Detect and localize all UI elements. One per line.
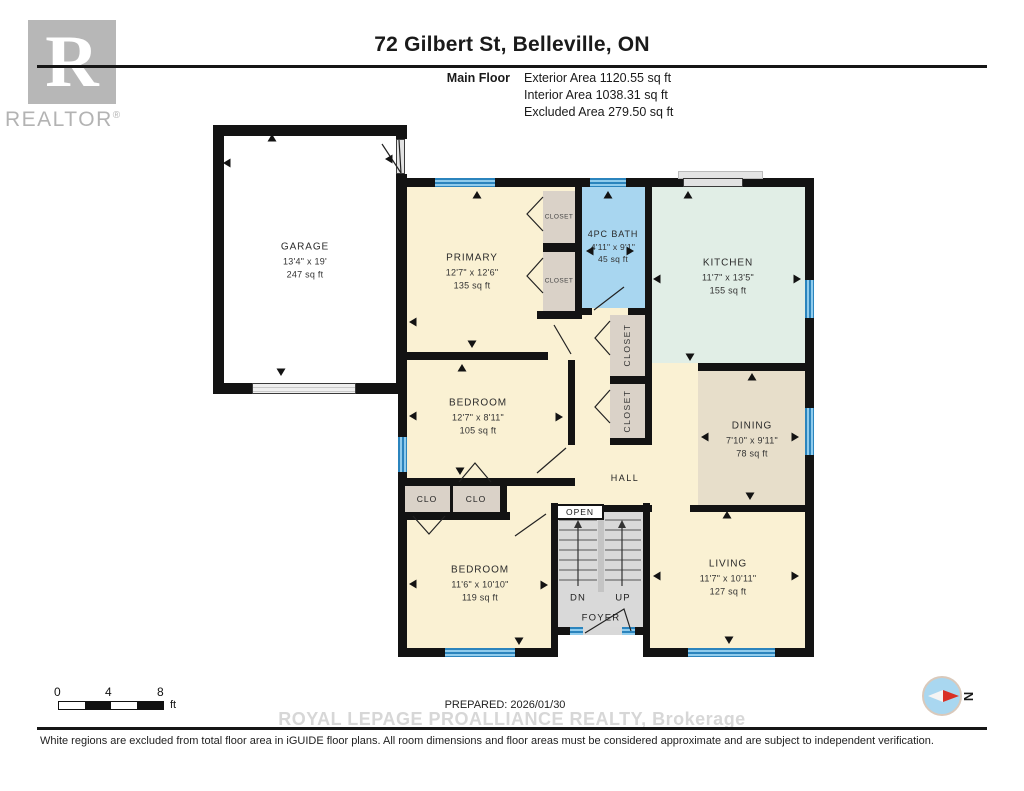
- foyer-label: FOYER: [582, 613, 621, 624]
- wall: [398, 352, 548, 360]
- label-primary: PRIMARY 12'7" x 12'6" 135 sq ft: [446, 252, 499, 293]
- prepared-date: PREPARED: 2026/01/30: [0, 699, 1010, 711]
- wall: [610, 438, 652, 445]
- window-bedroom-lower: [445, 648, 515, 657]
- disclaimer-text: White regions are excluded from total fl…: [40, 735, 1000, 747]
- window-primary: [435, 178, 495, 187]
- label-clo-1: CLO: [417, 494, 437, 504]
- label-clo-2: CLO: [466, 494, 486, 504]
- front-door: [583, 627, 622, 635]
- garage-entry-door: [396, 139, 405, 174]
- wall: [500, 486, 507, 512]
- porch: [558, 635, 643, 657]
- title-rule: [37, 65, 987, 68]
- label-kitchen: KITCHEN 11'7" x 13'5" 155 sq ft: [702, 257, 754, 298]
- label-garage: GARAGE 13'4" x 19' 247 sq ft: [281, 241, 329, 282]
- interior-area: Interior Area 1038.31 sq ft: [524, 88, 668, 102]
- floor-label: Main Floor: [380, 71, 510, 85]
- bottom-rule: [37, 727, 987, 730]
- window-kitchen: [805, 280, 814, 318]
- wall: [543, 243, 575, 252]
- realtor-logo-letter: R: [45, 25, 98, 99]
- wall: [398, 478, 575, 486]
- label-bedroom-mid: BEDROOM 12'7" x 8'11" 105 sq ft: [449, 397, 507, 438]
- label-bedroom-lower: BEDROOM 11'6" x 10'10" 119 sq ft: [451, 564, 509, 605]
- floorplan-page: R REALTOR® 72 Gilbert St, Belleville, ON…: [0, 0, 1024, 791]
- window-bath: [590, 178, 626, 187]
- wall: [575, 308, 592, 315]
- scale-tick-8: 8: [157, 685, 164, 699]
- wall: [628, 308, 652, 315]
- exterior-area: Exterior Area 1120.55 sq ft: [524, 71, 671, 85]
- wall: [450, 486, 453, 512]
- stairs-up-label: UP: [615, 593, 631, 604]
- scale-tick-4: 4: [105, 685, 112, 699]
- wall: [575, 187, 582, 319]
- kitchen-entry-door: [683, 178, 743, 187]
- scale-tick-0: 0: [54, 685, 61, 699]
- compass-north-label: N: [961, 692, 976, 701]
- wall: [690, 505, 812, 512]
- page-title: 72 Gilbert St, Belleville, ON: [0, 33, 1024, 57]
- compass-needle-red: [943, 690, 959, 702]
- wall: [610, 376, 652, 384]
- stairs-divider: [598, 512, 604, 592]
- wall: [568, 360, 575, 445]
- stairs-open-label: OPEN: [556, 504, 604, 520]
- label-living: LIVING 11'7" x 10'11" 127 sq ft: [700, 558, 757, 599]
- realtor-logo: R: [28, 20, 116, 104]
- label-closet-primary-1: CLOSET: [545, 214, 573, 221]
- label-closet-primary-2: CLOSET: [545, 278, 573, 285]
- window-dining: [805, 408, 814, 455]
- label-hall: HALL: [611, 473, 640, 483]
- garage-door: [252, 383, 356, 394]
- wall: [604, 505, 643, 512]
- wall: [398, 512, 510, 520]
- wall: [645, 187, 652, 315]
- realtor-wordmark: REALTOR®: [5, 108, 122, 132]
- label-closet-hall-1: CLOSET: [622, 323, 632, 366]
- front-sidelight-left: [570, 627, 583, 635]
- window-living: [688, 648, 775, 657]
- label-dining: DINING 7'10" x 9'11" 78 sq ft: [726, 420, 778, 461]
- stairs-dn-label: DN: [570, 593, 586, 604]
- label-closet-hall-2: CLOSET: [622, 389, 632, 432]
- window-bedroom-mid: [398, 437, 407, 472]
- wall: [643, 505, 652, 512]
- label-bath: 4PC BATH 4'11" x 9'1" 45 sq ft: [588, 228, 639, 266]
- excluded-area: Excluded Area 279.50 sq ft: [524, 105, 673, 119]
- front-sidelight-right: [622, 627, 635, 635]
- wall: [698, 363, 812, 371]
- compass-needle-white: [928, 690, 943, 702]
